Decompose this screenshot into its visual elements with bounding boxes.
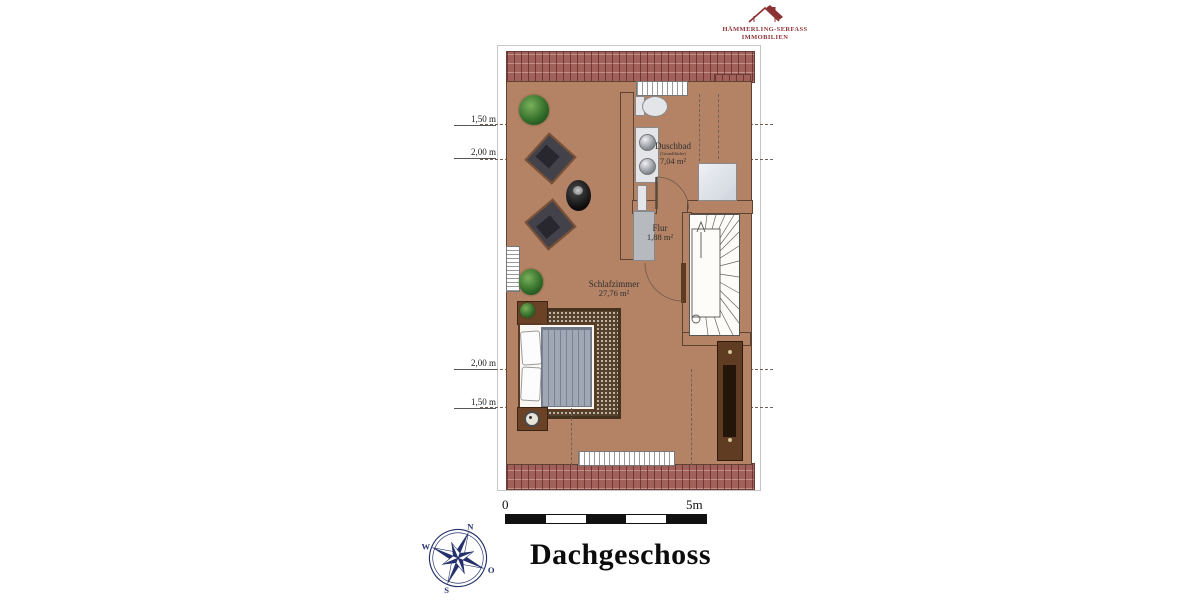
compass-south-label: S (444, 585, 449, 595)
winding-staircase (689, 214, 740, 336)
height-line-vertical-3 (691, 369, 692, 465)
window-left (506, 246, 520, 292)
house-roof-icon (746, 4, 784, 26)
floor-plan-sheet: HÄMMERLING-SERFASS IMMOBILIEN 1,50 m 2,0… (0, 0, 1200, 600)
table-decoration (573, 186, 583, 195)
wardrobe-knob-top (728, 350, 732, 354)
scale-end-label: 5m (686, 497, 703, 513)
plant-nightstand (520, 303, 535, 318)
pillow-2 (520, 366, 542, 401)
height-label-200-top: 2,00 m (454, 147, 496, 159)
plant-top-left (519, 95, 549, 125)
wall-bedroom-bath (621, 93, 633, 259)
armchair-1-seat (536, 145, 560, 169)
scale-bar (505, 514, 707, 524)
window-bottom (578, 451, 675, 466)
wardrobe-knob-bottom (728, 438, 732, 442)
room-label-flur: Flur 1,88 m² (638, 223, 682, 243)
bath-radiator (637, 185, 647, 211)
toilet-bowl (642, 96, 668, 117)
company-subtitle: IMMOBILIEN (742, 34, 789, 42)
compass-north-label: N (467, 522, 474, 532)
shower-tray (698, 163, 737, 201)
wall-bath-south-right (688, 201, 752, 213)
plant-mid-left (519, 269, 543, 295)
scale-segment (506, 515, 546, 523)
scale-segment (626, 515, 666, 523)
scale-segment (666, 515, 706, 523)
height-line-vertical-bath-2 (718, 94, 719, 159)
room-label-schlafzimmer: Schlafzimmer 27,76 m² (574, 279, 654, 299)
height-label-200-bottom: 2,00 m (454, 358, 496, 370)
compass-east-label: O (488, 565, 495, 575)
company-logo: HÄMMERLING-SERFASS IMMOBILIEN (720, 4, 810, 42)
compass-west-label: W (421, 541, 430, 551)
page-title: Dachgeschoss (530, 538, 711, 572)
scale-segment (586, 515, 626, 523)
height-label-150-top: 1,50 m (454, 114, 496, 126)
height-label-150-bottom: 1,50 m (454, 397, 496, 409)
bedside-lamp (524, 411, 540, 427)
pillow-1 (520, 330, 542, 365)
plan-drawing-area: Duschbad (Grundfläche) 7,04 m² Flur 1,88… (497, 45, 761, 491)
window-top-bath (636, 81, 688, 96)
scale-segment (546, 515, 586, 523)
company-name: HÄMMERLING-SERFASS (722, 26, 807, 34)
bed-duvet (541, 327, 592, 407)
side-table (566, 180, 591, 211)
room-label-duschbad: Duschbad (Grundfläche) 7,04 m² (641, 141, 705, 166)
roof-strip-bottom (506, 463, 755, 490)
compass-rose: N O S W (420, 520, 496, 596)
armchair-2-seat (536, 215, 560, 239)
wardrobe (717, 341, 743, 461)
scale-start-label: 0 (502, 497, 509, 513)
wardrobe-mirror (723, 365, 736, 437)
